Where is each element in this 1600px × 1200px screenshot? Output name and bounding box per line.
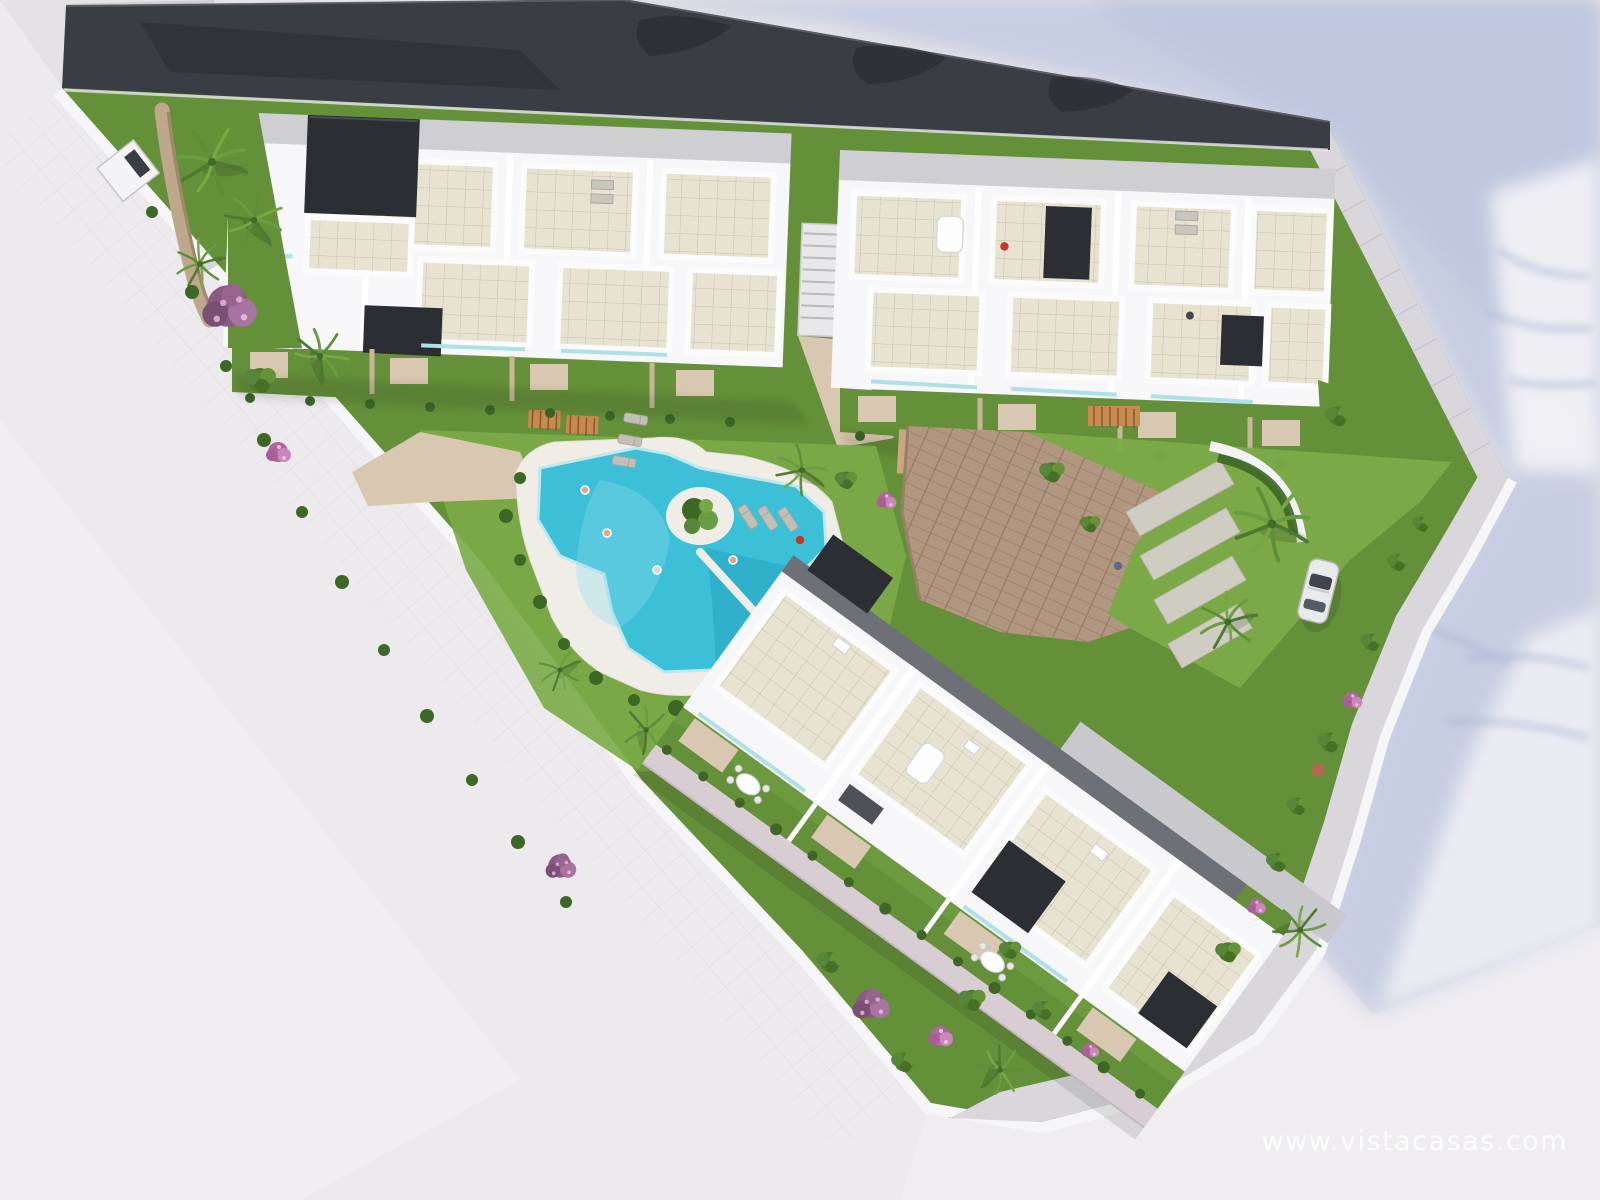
site-plan-canvas: www.vistacasas.com <box>0 0 1600 1200</box>
block-b-stair-core-2 <box>1220 315 1264 367</box>
townhouse-block-b <box>831 150 1336 407</box>
block-a-stair-core <box>304 115 420 217</box>
person-walking <box>1114 562 1122 570</box>
aerial-render: www.vistacasas.com <box>0 0 1600 1200</box>
block-b-pergola <box>1088 406 1140 429</box>
watermark-text: www.vistacasas.com <box>1262 1126 1568 1157</box>
roof-daybed <box>936 216 963 253</box>
person-on-deck <box>796 536 804 544</box>
block-b-stair-core <box>1043 206 1092 280</box>
